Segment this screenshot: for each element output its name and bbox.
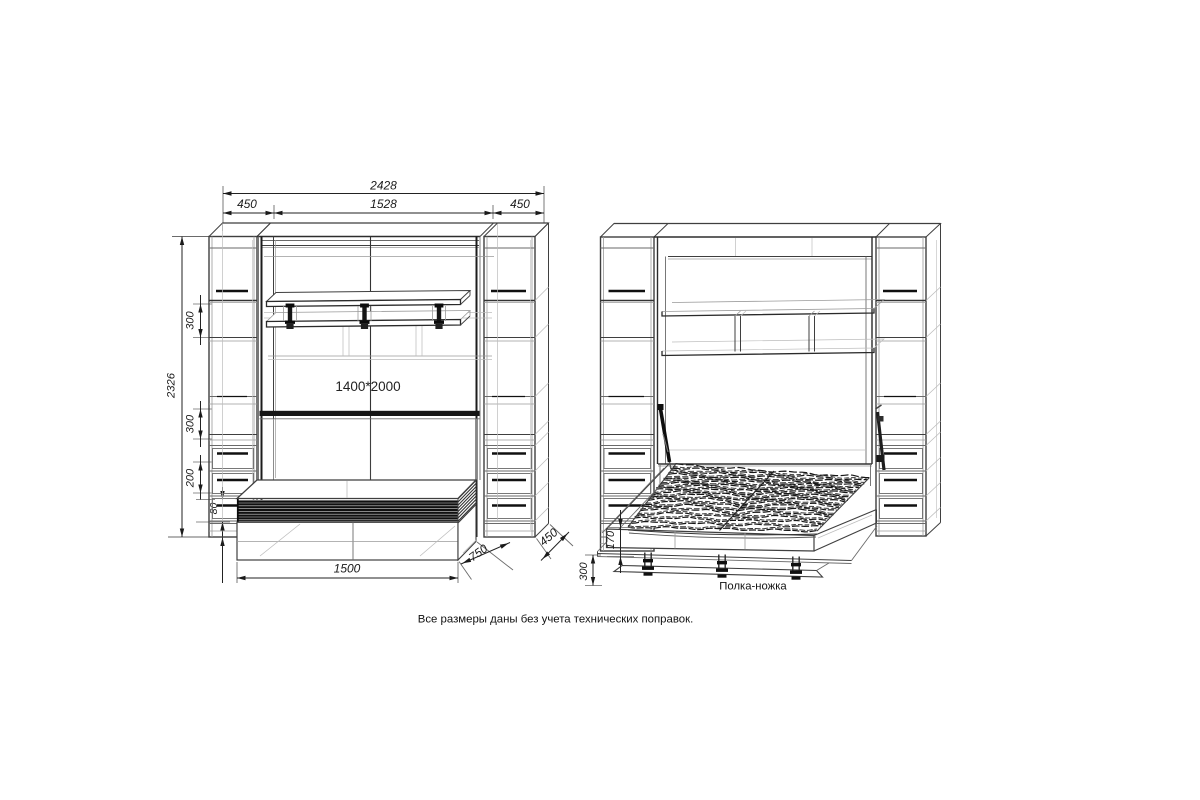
- svg-text:2428: 2428: [369, 179, 397, 193]
- svg-text:1528: 1528: [370, 197, 397, 211]
- svg-text:450: 450: [237, 197, 257, 211]
- svg-text:450: 450: [510, 197, 530, 211]
- svg-text:Полка-ножка: Полка-ножка: [719, 581, 787, 593]
- svg-text:300: 300: [185, 414, 197, 433]
- svg-text:80: 80: [208, 503, 220, 515]
- svg-text:300: 300: [185, 310, 197, 329]
- svg-text:300: 300: [578, 561, 590, 580]
- svg-text:1400*2000: 1400*2000: [335, 379, 400, 394]
- svg-text:170: 170: [605, 530, 617, 549]
- svg-text:1500: 1500: [334, 562, 361, 576]
- svg-text:200: 200: [185, 468, 197, 488]
- svg-text:2326: 2326: [166, 372, 178, 399]
- svg-text:Все размеры даны без учета тех: Все размеры даны без учета технических п…: [418, 614, 694, 626]
